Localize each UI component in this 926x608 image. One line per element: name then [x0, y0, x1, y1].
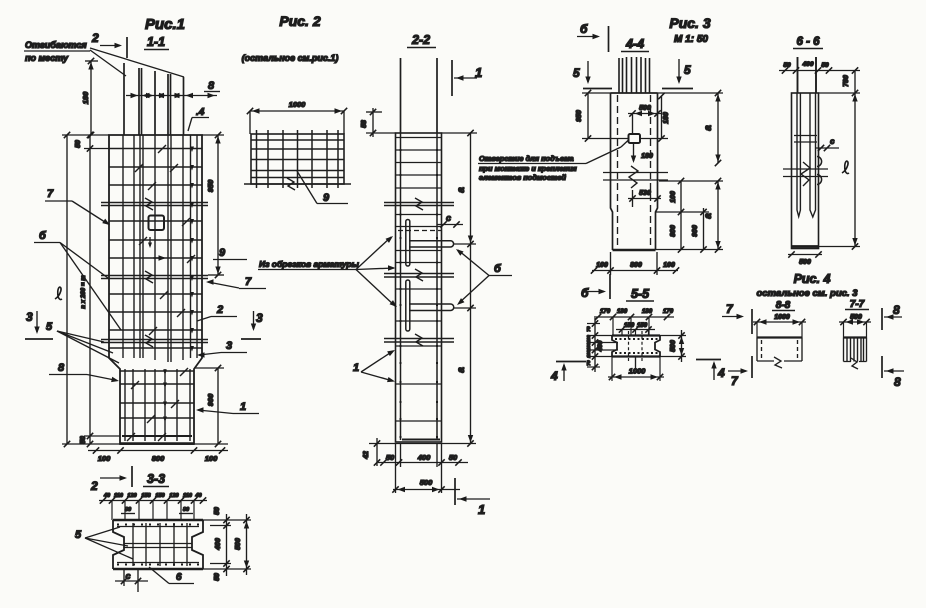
svg-text:110: 110	[114, 493, 124, 499]
svg-text:400: 400	[215, 538, 222, 551]
svg-text:780: 780	[843, 75, 850, 87]
svg-text:3: 3	[226, 340, 232, 352]
svg-text:.4: .4	[196, 107, 205, 118]
svg-text:М 1: 50: М 1: 50	[674, 34, 708, 45]
svg-text:1: 1	[353, 362, 359, 374]
svg-text:7: 7	[726, 302, 734, 316]
svg-text:при монтаже и крепления: при монтаже и крепления	[479, 164, 577, 173]
svg-text:а: а	[703, 213, 714, 219]
svg-text:Отгибаются: Отгибаются	[25, 40, 87, 50]
svg-text:950: 950	[206, 179, 215, 192]
svg-text:элементов подмостей: элементов подмостей	[479, 173, 567, 182]
svg-text:9: 9	[219, 247, 226, 259]
svg-text:7: 7	[47, 188, 54, 200]
svg-text:100: 100	[586, 350, 591, 358]
svg-text:70: 70	[586, 326, 591, 332]
svg-text:530: 530	[639, 190, 651, 197]
svg-text:c: c	[830, 137, 835, 146]
svg-text:180: 180	[81, 91, 90, 104]
svg-text:900: 900	[692, 225, 699, 237]
svg-text:3: 3	[256, 311, 263, 325]
svg-text:5: 5	[46, 321, 53, 333]
svg-text:180: 180	[617, 308, 628, 315]
svg-text:900: 900	[206, 393, 215, 406]
svg-text:150: 150	[155, 493, 165, 499]
svg-text:(остальное см.рис.1): (остальное см.рис.1)	[242, 53, 339, 63]
svg-text:950: 950	[576, 110, 583, 122]
svg-text:1: 1	[478, 502, 485, 517]
svg-text:1: 1	[240, 401, 246, 413]
svg-text:1: 1	[475, 65, 482, 80]
svg-text:1000: 1000	[774, 314, 790, 321]
svg-text:110: 110	[183, 493, 193, 499]
svg-text:по месту: по месту	[25, 53, 69, 63]
svg-text:7: 7	[245, 276, 252, 288]
svg-text:2: 2	[90, 479, 98, 493]
svg-text:1000: 1000	[289, 100, 307, 109]
svg-text:б: б	[580, 22, 588, 36]
svg-text:5: 5	[684, 63, 691, 77]
svg-text:80: 80	[125, 507, 132, 513]
svg-text:1000: 1000	[629, 367, 647, 376]
svg-text:50: 50	[75, 140, 82, 148]
svg-text:б: б	[39, 230, 47, 242]
svg-text:70: 70	[586, 360, 591, 366]
svg-text:158: 158	[141, 493, 151, 499]
svg-text:100: 100	[670, 191, 677, 203]
svg-text:100: 100	[663, 262, 675, 269]
svg-text:б: б	[494, 263, 502, 275]
svg-text:150: 150	[637, 322, 648, 329]
svg-text:400: 400	[597, 340, 604, 352]
svg-text:800: 800	[630, 262, 642, 269]
svg-text:остальное см. рис. 3: остальное см. рис. 3	[757, 288, 859, 299]
svg-text:170: 170	[600, 308, 611, 315]
svg-text:9: 9	[323, 192, 330, 204]
svg-text:8: 8	[894, 375, 901, 389]
svg-text:8: 8	[58, 362, 65, 374]
svg-text:Рис. 2: Рис. 2	[279, 13, 320, 29]
svg-text:6: 6	[176, 572, 182, 583]
svg-text:50: 50	[449, 453, 458, 462]
svg-text:8-8: 8-8	[776, 300, 791, 311]
svg-text:4: 4	[717, 366, 725, 380]
svg-text:5: 5	[75, 529, 82, 541]
svg-text:50: 50	[80, 436, 87, 444]
svg-text:400: 400	[801, 61, 813, 68]
svg-text:500: 500	[420, 478, 433, 487]
svg-text:50: 50	[214, 573, 221, 581]
svg-text:а: а	[456, 187, 467, 193]
svg-text:40: 40	[194, 493, 202, 499]
svg-text:80: 80	[183, 507, 190, 513]
svg-text:100: 100	[586, 342, 591, 350]
svg-text:170: 170	[663, 308, 674, 315]
svg-text:50: 50	[783, 62, 791, 69]
svg-text:180: 180	[663, 112, 670, 124]
svg-text:42: 42	[363, 451, 370, 460]
svg-text:8: 8	[893, 303, 900, 317]
svg-text:Рис.1: Рис.1	[145, 16, 185, 33]
svg-text:500: 500	[639, 105, 651, 112]
svg-text:180: 180	[641, 153, 653, 160]
svg-text:500: 500	[670, 340, 677, 352]
svg-text:800: 800	[670, 225, 677, 237]
svg-text:50: 50	[821, 62, 829, 69]
svg-text:7-7: 7-7	[850, 299, 865, 310]
svg-text:100: 100	[98, 454, 111, 463]
svg-text:3-3: 3-3	[147, 472, 165, 486]
svg-text:Рис. 4: Рис. 4	[794, 272, 831, 286]
svg-text:100: 100	[586, 335, 591, 343]
svg-text:6 - 6: 6 - 6	[796, 36, 820, 48]
svg-text:120: 120	[169, 493, 179, 499]
svg-text:4: 4	[550, 369, 558, 383]
svg-text:500: 500	[799, 259, 811, 266]
svg-text:а: а	[456, 367, 467, 373]
svg-text:2-2: 2-2	[411, 33, 430, 47]
svg-text:4-4: 4-4	[625, 37, 644, 51]
svg-text:2: 2	[216, 304, 223, 316]
svg-text:500: 500	[235, 538, 242, 550]
svg-text:2: 2	[91, 31, 99, 45]
svg-text:50: 50	[386, 453, 395, 462]
svg-text:100: 100	[205, 454, 218, 463]
svg-text:400: 400	[417, 453, 431, 462]
svg-text:б: б	[581, 286, 589, 300]
svg-text:3: 3	[26, 310, 33, 324]
svg-text:100: 100	[596, 262, 608, 269]
svg-text:7: 7	[731, 374, 739, 388]
svg-text:40: 40	[103, 493, 111, 499]
svg-text:5: 5	[573, 66, 580, 80]
svg-text:а: а	[703, 125, 714, 131]
svg-text:120: 120	[127, 493, 137, 499]
svg-text:180: 180	[642, 308, 653, 315]
svg-text:Из обрезков арматуры: Из обрезков арматуры	[259, 259, 360, 269]
svg-text:8: 8	[208, 80, 215, 92]
svg-text:c: c	[125, 571, 130, 581]
svg-text:Отверстие для подъема: Отверстие для подъема	[479, 154, 574, 163]
svg-text:58: 58	[361, 120, 368, 128]
svg-text:150: 150	[624, 322, 635, 329]
svg-text:Рис. 3: Рис. 3	[669, 15, 710, 31]
svg-text:5-5: 5-5	[631, 287, 650, 301]
svg-text:1-1: 1-1	[147, 35, 165, 49]
svg-text:800: 800	[152, 454, 165, 463]
svg-text:50: 50	[214, 507, 221, 515]
